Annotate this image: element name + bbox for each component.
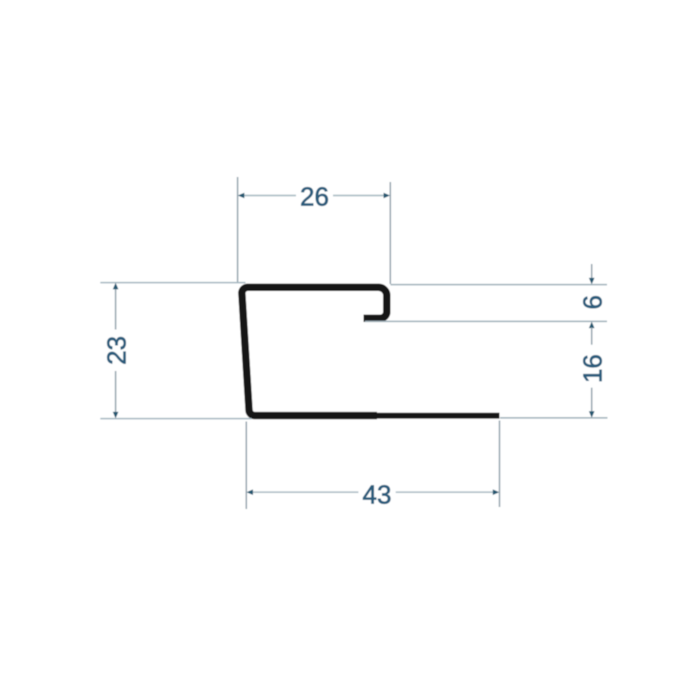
svg-text:23: 23: [102, 336, 132, 365]
svg-text:26: 26: [300, 182, 329, 212]
svg-text:16: 16: [577, 354, 607, 383]
svg-text:43: 43: [363, 480, 392, 510]
svg-text:6: 6: [577, 295, 607, 309]
